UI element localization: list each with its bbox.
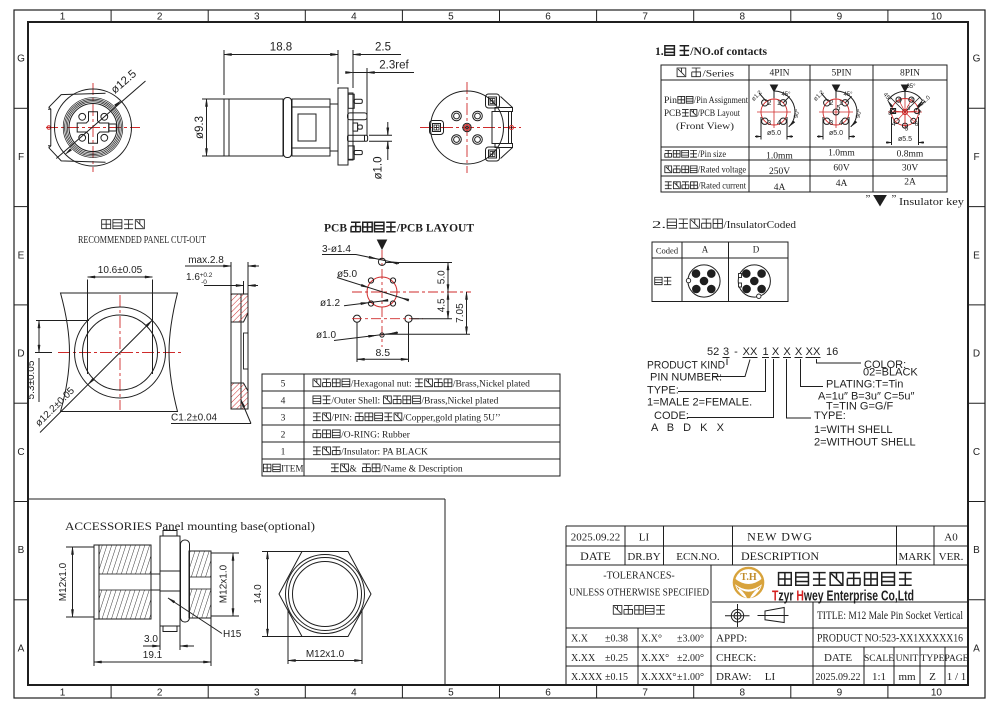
svg-text:RECOMMENDED PANEL CUT-OUT: RECOMMENDED PANEL CUT-OUT <box>78 234 206 246</box>
svg-text:XX: XX <box>806 346 821 358</box>
svg-text:3: 3 <box>254 688 260 699</box>
svg-text:4: 4 <box>351 12 357 23</box>
svg-text:1 / 1: 1 / 1 <box>947 671 967 683</box>
svg-text:ø9.3: ø9.3 <box>194 116 206 139</box>
svg-text:/PCB LAYOUT: /PCB LAYOUT <box>396 223 475 235</box>
svg-text:CODE:: CODE: <box>654 410 689 422</box>
svg-text:45°: 45° <box>781 92 791 98</box>
svg-text:C: C <box>17 447 24 458</box>
svg-text:7: 7 <box>918 110 922 117</box>
svg-text:X.X: X.X <box>571 634 589 645</box>
svg-text:X.XXX: X.XXX <box>571 672 603 683</box>
svg-text:1: 1 <box>60 688 66 699</box>
svg-text:A: A <box>973 643 980 654</box>
svg-text:/Rated voltage: /Rated voltage <box>698 166 746 176</box>
svg-text:1=MALE 2=FEMALE.: 1=MALE 2=FEMALE. <box>647 397 752 409</box>
svg-text:19.1: 19.1 <box>143 650 163 661</box>
svg-text:X: X <box>772 346 780 358</box>
svg-text:T.H: T.H <box>740 572 756 583</box>
svg-text:2: 2 <box>157 688 163 699</box>
svg-text:ø1.2: ø1.2 <box>320 298 340 309</box>
svg-text:Insulator key: Insulator key <box>899 196 965 208</box>
svg-text:8: 8 <box>888 110 892 117</box>
svg-text:A B D K X: A B D K X <box>651 422 727 434</box>
svg-text:7: 7 <box>642 12 648 23</box>
svg-text:PCB: PCB <box>324 223 347 235</box>
svg-text:/PIN:: /PIN: <box>331 414 352 424</box>
svg-text:8PIN: 8PIN <box>900 69 920 79</box>
svg-text:X: X <box>795 346 803 358</box>
svg-text:3: 3 <box>907 105 911 112</box>
svg-text:2.3ref: 2.3ref <box>379 60 409 72</box>
svg-text:G: G <box>17 54 25 65</box>
svg-text:5: 5 <box>448 12 454 23</box>
svg-text:B: B <box>18 545 25 556</box>
svg-text:2: 2 <box>768 100 772 107</box>
svg-text:5: 5 <box>281 380 286 390</box>
svg-text:30V: 30V <box>902 164 919 174</box>
svg-text:ø5.0: ø5.0 <box>767 130 781 137</box>
svg-text:NEW DWG: NEW DWG <box>747 530 813 544</box>
svg-text:14.0: 14.0 <box>253 584 264 604</box>
svg-text:PRODUCT NO:523-XX1XXXXX16: PRODUCT NO:523-XX1XXXXX16 <box>817 633 963 645</box>
svg-text:ø1.0: ø1.0 <box>316 330 336 341</box>
svg-text:M12x1.0: M12x1.0 <box>306 649 345 660</box>
svg-text:10.6±0.05: 10.6±0.05 <box>98 265 143 276</box>
svg-text:52: 52 <box>707 346 719 358</box>
svg-text:2025.09.22: 2025.09.22 <box>816 672 861 683</box>
svg-text:LI: LI <box>639 532 650 544</box>
svg-text:X.XXX°: X.XXX° <box>641 672 676 683</box>
svg-text:-0: -0 <box>201 279 207 286</box>
svg-text:/O-RING: Rubber: /O-RING: Rubber <box>341 431 411 441</box>
svg-text:5: 5 <box>448 688 454 699</box>
svg-text:”: ” <box>866 193 871 205</box>
svg-text:3-ø1.4: 3-ø1.4 <box>322 244 351 255</box>
svg-text:9: 9 <box>837 12 843 23</box>
svg-text:DESCRIPTION: DESCRIPTION <box>741 549 819 563</box>
svg-text:ACCESSORIES Panel mounting bas: ACCESSORIES Panel mounting base(optional… <box>65 519 315 533</box>
svg-text:2A: 2A <box>904 178 916 188</box>
svg-text:±1.00°: ±1.00° <box>677 672 704 683</box>
svg-text:7: 7 <box>642 688 648 699</box>
svg-text:16: 16 <box>826 346 838 358</box>
svg-text:Pin: Pin <box>664 96 677 106</box>
svg-text:DR.BY: DR.BY <box>627 551 660 563</box>
svg-text:C1.2±0.04: C1.2±0.04 <box>171 413 218 424</box>
svg-text:1: 1 <box>281 448 286 458</box>
svg-text:±3.00°: ±3.00° <box>677 634 704 645</box>
svg-text:ITEM: ITEM <box>281 465 304 475</box>
svg-text:6: 6 <box>545 688 551 699</box>
svg-text:5.0: 5.0 <box>437 270 448 284</box>
svg-text:±0.15: ±0.15 <box>605 672 628 683</box>
svg-text:X.XX: X.XX <box>571 653 596 664</box>
svg-text:2=WITHOUT SHELL: 2=WITHOUT SHELL <box>814 437 916 449</box>
svg-text:D: D <box>17 349 24 360</box>
svg-text:TITLE: M12 Male Pin Socket Ver: TITLE: M12 Male Pin Socket Vertical <box>817 610 963 622</box>
svg-text:0.8mm: 0.8mm <box>897 150 924 160</box>
svg-text:±0.25: ±0.25 <box>605 653 628 664</box>
svg-text:/NO.of contacts: /NO.of contacts <box>689 44 767 58</box>
svg-text:/Pin Assignment: /Pin Assignment <box>694 96 749 106</box>
svg-text:Tzyr Hwey Enterprise Co,Ltd: Tzyr Hwey Enterprise Co,Ltd <box>772 589 914 605</box>
svg-text:5PIN: 5PIN <box>831 69 851 79</box>
svg-text:6: 6 <box>545 12 551 23</box>
svg-text:10: 10 <box>931 12 943 23</box>
svg-text:4.5: 4.5 <box>437 298 448 312</box>
svg-text:X.XX°: X.XX° <box>641 653 669 664</box>
svg-text:18.8: 18.8 <box>270 42 292 54</box>
svg-text:PRODUCT KIND: PRODUCT KIND <box>647 360 725 372</box>
svg-text:E: E <box>18 250 25 261</box>
svg-text:65°: 65° <box>906 84 916 90</box>
svg-text:4: 4 <box>777 120 781 127</box>
svg-text:A0: A0 <box>944 532 958 544</box>
svg-text:02=BLACK: 02=BLACK <box>863 367 918 379</box>
svg-text:ø1.0: ø1.0 <box>373 156 385 179</box>
svg-text:4: 4 <box>351 688 357 699</box>
svg-text:/Name & Description: /Name & Description <box>381 465 463 475</box>
svg-text:/Hexagonal nut:: /Hexagonal nut: <box>351 380 412 390</box>
svg-text:1: 1 <box>777 100 781 107</box>
svg-text:+0.2: +0.2 <box>200 272 213 279</box>
svg-text:2025.09.22: 2025.09.22 <box>571 532 621 544</box>
svg-text:7.05: 7.05 <box>455 303 466 323</box>
svg-text:8: 8 <box>739 688 745 699</box>
svg-text:5: 5 <box>837 105 841 112</box>
svg-text:/PCB Layout: /PCB Layout <box>698 109 741 119</box>
svg-text:3: 3 <box>829 120 833 127</box>
svg-text:M12x1.0: M12x1.0 <box>58 562 69 601</box>
svg-text:8.5: 8.5 <box>375 347 390 359</box>
svg-text:4PIN: 4PIN <box>769 69 789 79</box>
svg-text:4: 4 <box>281 397 286 407</box>
svg-text:4A: 4A <box>836 179 848 189</box>
svg-text:PIN NUMBER:: PIN NUMBER: <box>650 372 722 384</box>
svg-text:M12x1.0: M12x1.0 <box>219 564 230 603</box>
svg-text:1: 1 <box>762 346 768 358</box>
svg-text:X.X°: X.X° <box>641 634 662 645</box>
svg-text:/Brass,Nickel plated: /Brass,Nickel plated <box>453 380 530 390</box>
svg-text:1.: 1. <box>655 44 664 58</box>
svg-text:H15: H15 <box>223 629 242 640</box>
svg-text:SCALE: SCALE <box>864 654 894 664</box>
svg-text:max.2.8: max.2.8 <box>188 255 224 266</box>
svg-text:”: ” <box>892 193 897 205</box>
svg-text:(Front View): (Front View) <box>676 121 734 132</box>
svg-text:2.5: 2.5 <box>375 42 391 54</box>
svg-text:5.3±0.05: 5.3±0.05 <box>26 360 37 399</box>
svg-text:TYPE: TYPE <box>921 654 945 664</box>
svg-text:2: 2 <box>281 431 286 441</box>
svg-text:PCB: PCB <box>664 109 681 119</box>
svg-text:3: 3 <box>723 346 729 358</box>
svg-text:2: 2 <box>830 100 834 107</box>
svg-text:1: 1 <box>60 12 66 23</box>
svg-text:VER.: VER. <box>939 551 964 563</box>
svg-text:250V: 250V <box>769 167 790 177</box>
svg-text:ø5.0: ø5.0 <box>829 130 843 137</box>
svg-text:±2.00°: ±2.00° <box>677 653 704 664</box>
svg-text:-TOLERANCES-: -TOLERANCES- <box>603 571 674 582</box>
svg-text:/InsulatorCoded: /InsulatorCoded <box>723 219 796 231</box>
svg-text:1=WITH SHELL: 1=WITH SHELL <box>814 424 893 436</box>
svg-text:8: 8 <box>739 12 745 23</box>
svg-text:X: X <box>783 346 791 358</box>
svg-text:PAGE: PAGE <box>945 654 969 664</box>
svg-text:45°: 45° <box>843 92 853 98</box>
svg-text:60V: 60V <box>833 164 850 174</box>
svg-text:A: A <box>702 245 709 255</box>
svg-text:Coded: Coded <box>656 246 679 256</box>
svg-text:TYPE:: TYPE: <box>647 385 679 397</box>
svg-text:/Copper,gold plating 5U’’: /Copper,gold plating 5U’’ <box>403 414 501 424</box>
svg-text:3.0: 3.0 <box>144 634 158 645</box>
svg-text:A: A <box>18 643 25 654</box>
svg-text:ECN.NO.: ECN.NO. <box>676 551 720 563</box>
svg-text:1:1: 1:1 <box>872 671 886 683</box>
svg-text:2.: 2. <box>652 219 667 231</box>
svg-text:DATE: DATE <box>580 549 611 563</box>
svg-text:F: F <box>973 152 979 163</box>
svg-text:Z: Z <box>929 671 936 683</box>
svg-text:TYPE:: TYPE: <box>814 410 846 422</box>
svg-text:C: C <box>973 447 980 458</box>
svg-text:UNIT: UNIT <box>896 654 919 664</box>
svg-text:D: D <box>973 349 980 360</box>
svg-text:MARK: MARK <box>898 551 931 563</box>
svg-text:/Series: /Series <box>703 70 735 80</box>
svg-text:3: 3 <box>281 414 286 424</box>
svg-text:DRAW:: DRAW: <box>716 671 751 683</box>
svg-text:/Rated current: /Rated current <box>698 182 746 192</box>
svg-text:XX: XX <box>743 346 758 358</box>
svg-text:mm: mm <box>898 671 916 683</box>
svg-text:CHECK:: CHECK: <box>716 652 756 664</box>
svg-text:3: 3 <box>254 12 260 23</box>
svg-text:LI: LI <box>765 671 776 683</box>
svg-text:2: 2 <box>157 12 163 23</box>
svg-text:9: 9 <box>837 688 843 699</box>
svg-text:/Pin size: /Pin size <box>698 150 726 160</box>
svg-text:1.6: 1.6 <box>186 272 200 283</box>
svg-text:3: 3 <box>767 120 771 127</box>
svg-text:4A: 4A <box>774 183 786 193</box>
svg-text:-: - <box>734 346 738 358</box>
svg-text:±0.38: ±0.38 <box>605 634 628 645</box>
svg-text:1.0mm: 1.0mm <box>766 152 793 162</box>
svg-text:&: & <box>349 465 357 475</box>
svg-text:/Insulator: PA BLACK: /Insulator: PA BLACK <box>341 448 428 458</box>
svg-text:B: B <box>973 545 980 556</box>
svg-text:/Outer Shell:: /Outer Shell: <box>331 397 380 407</box>
svg-text:DATE: DATE <box>824 652 852 664</box>
svg-text:F: F <box>18 152 24 163</box>
svg-text:1.0mm: 1.0mm <box>828 149 855 159</box>
svg-text:4: 4 <box>839 120 843 127</box>
svg-text:PLATING:T=Tin: PLATING:T=Tin <box>826 379 903 391</box>
svg-text:ø5.5: ø5.5 <box>898 136 912 143</box>
svg-text:5: 5 <box>905 126 909 133</box>
svg-text:APPD:: APPD: <box>716 633 747 645</box>
svg-text:G: G <box>973 54 981 65</box>
svg-text:/Brass,Nickel plated: /Brass,Nickel plated <box>421 397 498 407</box>
svg-text:D: D <box>753 245 760 255</box>
svg-text:10: 10 <box>931 688 943 699</box>
svg-text:E: E <box>973 250 980 261</box>
svg-text:4: 4 <box>892 121 896 128</box>
svg-text:UNLESS OTHERWISE SPECIFIED: UNLESS OTHERWISE SPECIFIED <box>569 588 709 599</box>
